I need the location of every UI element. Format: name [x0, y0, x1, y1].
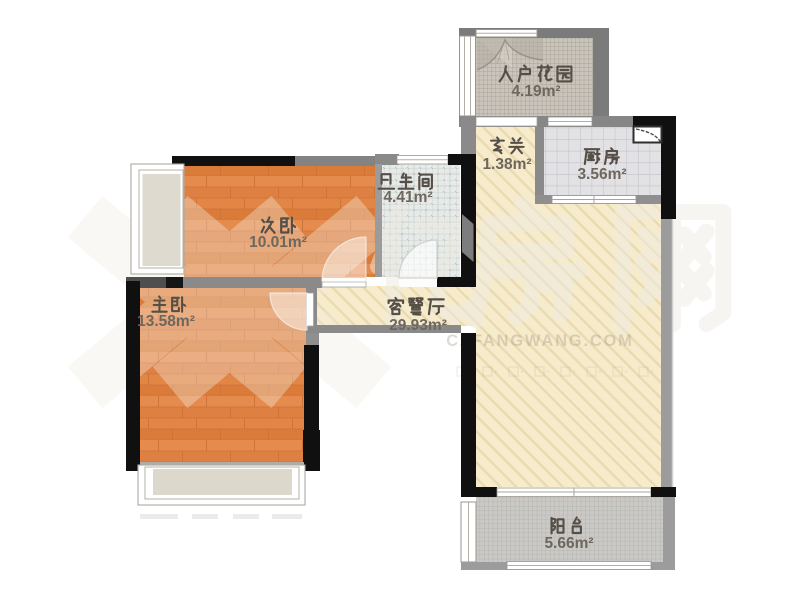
svg-text:1.38m²: 1.38m²: [482, 156, 531, 173]
svg-text:10.01m²: 10.01m²: [249, 234, 307, 251]
svg-text:5.66m²: 5.66m²: [544, 535, 593, 552]
svg-text:13.58m²: 13.58m²: [137, 313, 195, 330]
svg-text:4.19m²: 4.19m²: [511, 83, 560, 100]
svg-text:3.56m²: 3.56m²: [577, 166, 626, 183]
svg-text:29.93m²: 29.93m²: [389, 317, 447, 334]
svg-text:4.41m²: 4.41m²: [383, 189, 432, 206]
